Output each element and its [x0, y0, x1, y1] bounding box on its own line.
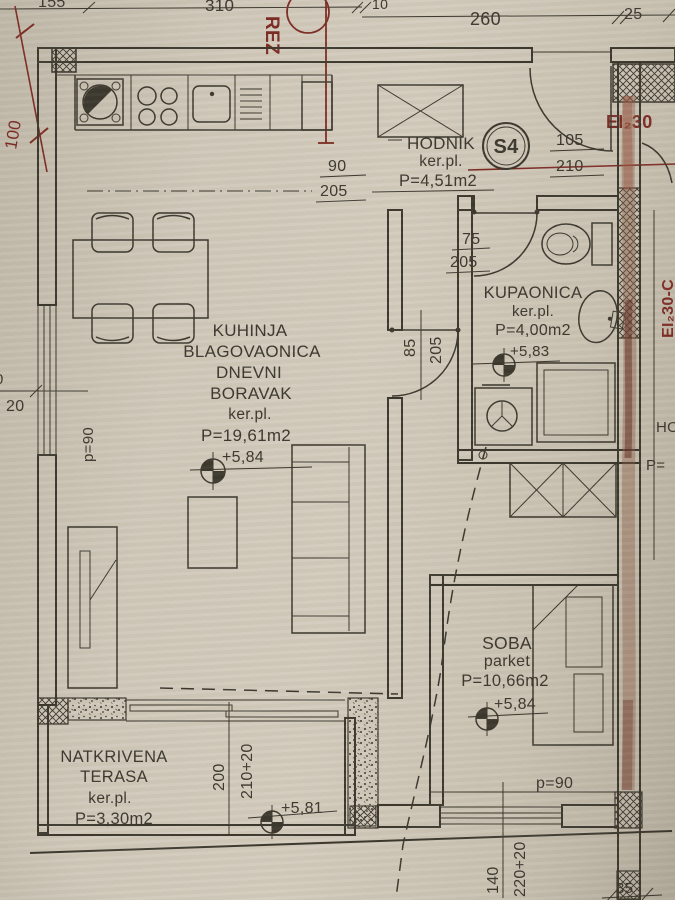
dim-terrace-door: 200 210+20 — [211, 702, 256, 835]
level-marker-living: +5,84 — [190, 449, 312, 490]
living-area: P=19,61m2 — [201, 426, 291, 445]
svg-text:205: 205 — [428, 336, 445, 364]
svg-text:220+20: 220+20 — [512, 841, 529, 897]
left-wall-lower — [38, 455, 56, 705]
soba-south-wall-right — [562, 805, 618, 827]
dim-260: 260 — [470, 9, 501, 29]
svg-text:20: 20 — [6, 398, 24, 415]
bath-door-arc — [474, 213, 537, 276]
floorplan-photo: 155 310 10 260 25 100 REZ EI₂30 EI₂30-C — [0, 0, 675, 900]
wardrobe-icon — [510, 463, 616, 517]
hodnik-labels: HODNIK ker.pl. P=4,51m2 — [372, 134, 494, 192]
neighbor-frag1: HO — [656, 419, 675, 436]
floorplan-drawing: 155 310 10 260 25 100 REZ EI₂30 EI₂30-C — [0, 0, 675, 900]
unit-tag: S4 — [483, 123, 529, 169]
fire-rating-ei30c: EI₂30-C — [660, 279, 675, 338]
terasa-floor: ker.pl. — [88, 790, 131, 807]
dim-10: 10 — [372, 0, 388, 12]
stove-icon — [138, 87, 177, 125]
living-east-wall-lower — [388, 398, 402, 698]
dim-kitchen-door: 90 205 — [316, 158, 366, 202]
doors — [390, 66, 614, 396]
kitchen-counter — [75, 75, 332, 191]
roof-projection-lines — [160, 447, 486, 898]
soba-north-wall — [430, 575, 618, 585]
kupaonica-name: KUPAONICA — [484, 284, 583, 302]
terasa-name2: TERASA — [80, 768, 148, 786]
dim-25: 25 — [624, 6, 642, 23]
level-bath: +5,83 — [510, 343, 549, 360]
dim-entry-door: 105 210 — [550, 132, 604, 177]
dishrack-icon — [240, 89, 262, 119]
soba-west-wall — [430, 575, 443, 805]
terrace-sliding-door — [126, 700, 345, 721]
level-marker-terrace: +5,81 — [248, 800, 337, 839]
level-marker-soba: +5,84 — [468, 696, 548, 736]
svg-text:0: 0 — [0, 371, 4, 388]
pier-terrace-left — [38, 698, 68, 724]
sofa — [292, 445, 365, 633]
svg-text:90: 90 — [328, 158, 346, 175]
hodnik-name: HODNIK — [407, 134, 475, 153]
neighbor-frag2: P= — [646, 457, 665, 474]
svg-text:200: 200 — [211, 763, 228, 791]
svg-text:210: 210 — [556, 158, 584, 175]
vent-boiler-icon — [77, 79, 123, 125]
unit-tag-label: S4 — [493, 136, 519, 158]
bed-icon — [533, 585, 613, 745]
dining-set — [73, 213, 208, 343]
soba-window — [440, 805, 562, 827]
dim-155: 155 — [38, 0, 66, 11]
dim-100-red: 100 — [1, 119, 25, 151]
soba-area: P=10,66m2 — [461, 672, 549, 690]
dim-living-door: 85 205 — [402, 310, 445, 400]
svg-text:140: 140 — [485, 866, 502, 894]
wall-highlight-streak — [627, 96, 630, 790]
svg-text:75: 75 — [462, 231, 480, 248]
level-soba: +5,84 — [494, 696, 536, 713]
coffee-table — [188, 497, 237, 568]
terasa-name1: NATKRIVENA — [60, 748, 167, 766]
right-wall-hatch2 — [615, 792, 642, 828]
soba-south-wall-left — [378, 805, 440, 827]
dim-310: 310 — [205, 0, 234, 15]
level-terrace: +5,81 — [281, 800, 323, 817]
bath-north-wall-right — [537, 196, 618, 210]
living-name4: BORAVAK — [210, 384, 292, 403]
section-label-rez: REZ — [261, 16, 282, 55]
neighbor-unit: HO P= — [642, 143, 675, 560]
svg-text:205: 205 — [450, 254, 478, 271]
top-dimension-chain: 155 310 10 260 25 — [0, 0, 675, 29]
pier-speckle-mid-cap — [350, 806, 376, 826]
bathroom-fixtures — [475, 223, 628, 459]
soba-parapet: p=90 — [536, 775, 573, 792]
top-wall-right — [611, 48, 675, 62]
living-floor: ker.pl. — [228, 406, 271, 423]
shower-icon — [537, 363, 615, 442]
living-name2: BLAGOVAONICA — [183, 342, 321, 361]
hall-closet-icon — [378, 85, 463, 137]
dim-bottom-right: 35 — [602, 880, 662, 900]
living-window-left — [38, 305, 56, 455]
living-name1: KUHINJA — [213, 321, 288, 340]
living-east-wall-upper — [388, 210, 402, 330]
living-parapet: p=90 — [80, 427, 97, 462]
pier-topright — [613, 64, 675, 102]
hodnik-area: P=4,51m2 — [399, 172, 477, 190]
svg-text:35: 35 — [616, 880, 633, 897]
terasa-labels: NATKRIVENA TERASA ker.pl. P=3,30m2 — [60, 748, 167, 828]
sink-icon — [193, 86, 230, 122]
hodnik-floor: ker.pl. — [419, 153, 462, 170]
fridge-icon — [302, 82, 332, 130]
kupaonica-labels: KUPAONICA ker.pl. P=4,00m2 — [484, 284, 583, 339]
svg-text:105: 105 — [556, 132, 584, 149]
soba-floor: parket — [484, 653, 531, 670]
toilet-icon — [542, 223, 612, 265]
terasa-area: P=3,30m2 — [75, 810, 153, 828]
pier-terrace-speckle — [68, 698, 126, 720]
svg-text:210+20: 210+20 — [239, 743, 256, 799]
svg-text:205: 205 — [320, 183, 348, 200]
dim-left-edge: 0 20 p=90 — [0, 371, 97, 462]
soba-name: SOBA — [482, 633, 532, 653]
kupaonica-floor: ker.pl. — [512, 303, 554, 320]
living-labels: KUHINJA BLAGOVAONICA DNEVNI BORAVAK ker.… — [183, 321, 321, 445]
tv-cabinet — [68, 527, 117, 688]
kupaonica-area: P=4,00m2 — [495, 322, 571, 339]
level-living: +5,84 — [222, 449, 264, 466]
soba-labels: SOBA parket P=10,66m2 — [461, 633, 549, 690]
svg-text:85: 85 — [402, 339, 419, 357]
living-name3: DNEVNI — [216, 363, 282, 382]
left-wall-upper — [38, 48, 56, 305]
washing-machine-icon — [475, 385, 532, 445]
top-wall-left — [38, 48, 532, 62]
dim-bath-door: 75 205 — [446, 231, 490, 273]
